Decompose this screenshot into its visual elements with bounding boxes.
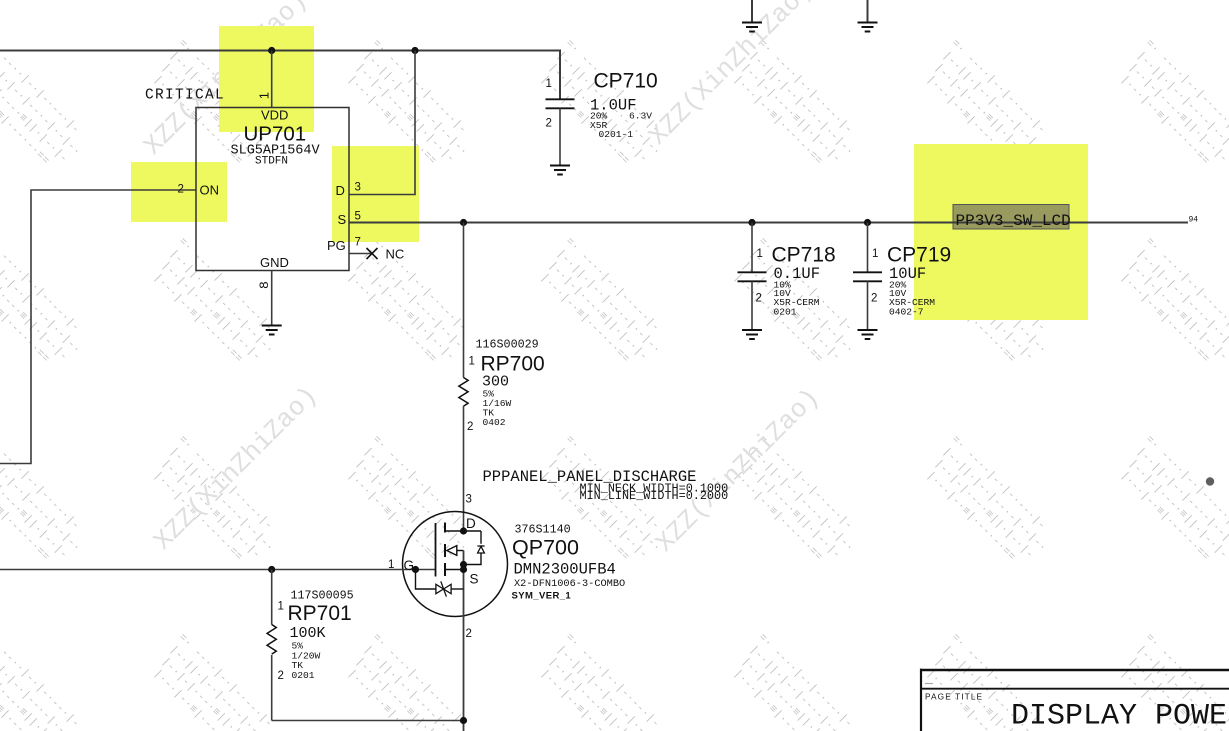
svg-text:0402-7: 0402-7 xyxy=(889,307,924,318)
svg-text:3: 3 xyxy=(466,494,472,506)
svg-text:STDFN: STDFN xyxy=(255,156,288,168)
svg-text:8: 8 xyxy=(257,281,272,289)
svg-text:2: 2 xyxy=(871,293,877,305)
svg-text:1: 1 xyxy=(757,248,763,260)
svg-text:0402: 0402 xyxy=(483,417,506,428)
svg-text:RP700: RP700 xyxy=(481,353,545,376)
svg-text:D: D xyxy=(336,183,345,198)
svg-text:1: 1 xyxy=(388,559,394,571)
svg-text:1: 1 xyxy=(469,356,475,368)
svg-text:RP701: RP701 xyxy=(288,602,352,625)
svg-text:100K: 100K xyxy=(290,625,326,642)
svg-text:94: 94 xyxy=(1189,216,1199,225)
svg-text:MIN_LINE_WIDTH=0.2000: MIN_LINE_WIDTH=0.2000 xyxy=(580,489,729,503)
svg-text:1: 1 xyxy=(257,92,272,99)
svg-text:117S00095: 117S00095 xyxy=(291,589,354,603)
svg-text:0201-1: 0201-1 xyxy=(599,129,634,140)
svg-text:ON: ON xyxy=(200,183,220,198)
svg-text:1: 1 xyxy=(872,248,878,260)
svg-text:PP3V3_SW_LCD: PP3V3_SW_LCD xyxy=(956,212,1071,230)
svg-text:CP718: CP718 xyxy=(772,244,836,267)
svg-text:SYM_VER_1: SYM_VER_1 xyxy=(512,591,572,602)
svg-text:7: 7 xyxy=(355,237,361,249)
svg-text:GND: GND xyxy=(260,255,289,270)
svg-text:376S1140: 376S1140 xyxy=(515,523,571,537)
svg-text:D: D xyxy=(466,516,476,531)
svg-text:2: 2 xyxy=(546,118,552,130)
svg-text:DISPLAY POWER: DISPLAY POWER xyxy=(1011,700,1229,731)
svg-text:S: S xyxy=(470,572,479,587)
svg-text:1: 1 xyxy=(546,78,552,90)
svg-text:CP719: CP719 xyxy=(887,244,951,267)
svg-text:CP710: CP710 xyxy=(594,70,658,93)
svg-text:5: 5 xyxy=(355,211,361,223)
svg-text:0201: 0201 xyxy=(774,307,797,318)
svg-text:VDD: VDD xyxy=(261,108,288,123)
svg-text:6.3V: 6.3V xyxy=(629,111,652,122)
svg-text:116S00029: 116S00029 xyxy=(476,338,539,352)
svg-text:DMN2300UFB4: DMN2300UFB4 xyxy=(514,561,616,579)
svg-text:X2-DFN1006-3-COMBO: X2-DFN1006-3-COMBO xyxy=(514,578,625,590)
svg-text:3: 3 xyxy=(355,182,361,194)
svg-text:NC: NC xyxy=(386,247,405,262)
svg-text:S: S xyxy=(338,212,347,227)
svg-text:2: 2 xyxy=(467,421,473,433)
svg-text:2: 2 xyxy=(756,293,762,305)
svg-text:PG: PG xyxy=(327,238,346,253)
svg-text:0201: 0201 xyxy=(292,670,315,681)
svg-text:UP701: UP701 xyxy=(244,123,307,146)
svg-text:1: 1 xyxy=(278,601,284,613)
svg-text:QP700: QP700 xyxy=(512,536,579,560)
svg-text:PAGE TITLE: PAGE TITLE xyxy=(925,692,983,702)
svg-text:2: 2 xyxy=(178,184,184,196)
svg-text:CRITICAL: CRITICAL xyxy=(145,88,225,104)
svg-text:G: G xyxy=(404,558,415,573)
svg-text:2: 2 xyxy=(466,628,472,640)
svg-text:2: 2 xyxy=(278,670,284,682)
